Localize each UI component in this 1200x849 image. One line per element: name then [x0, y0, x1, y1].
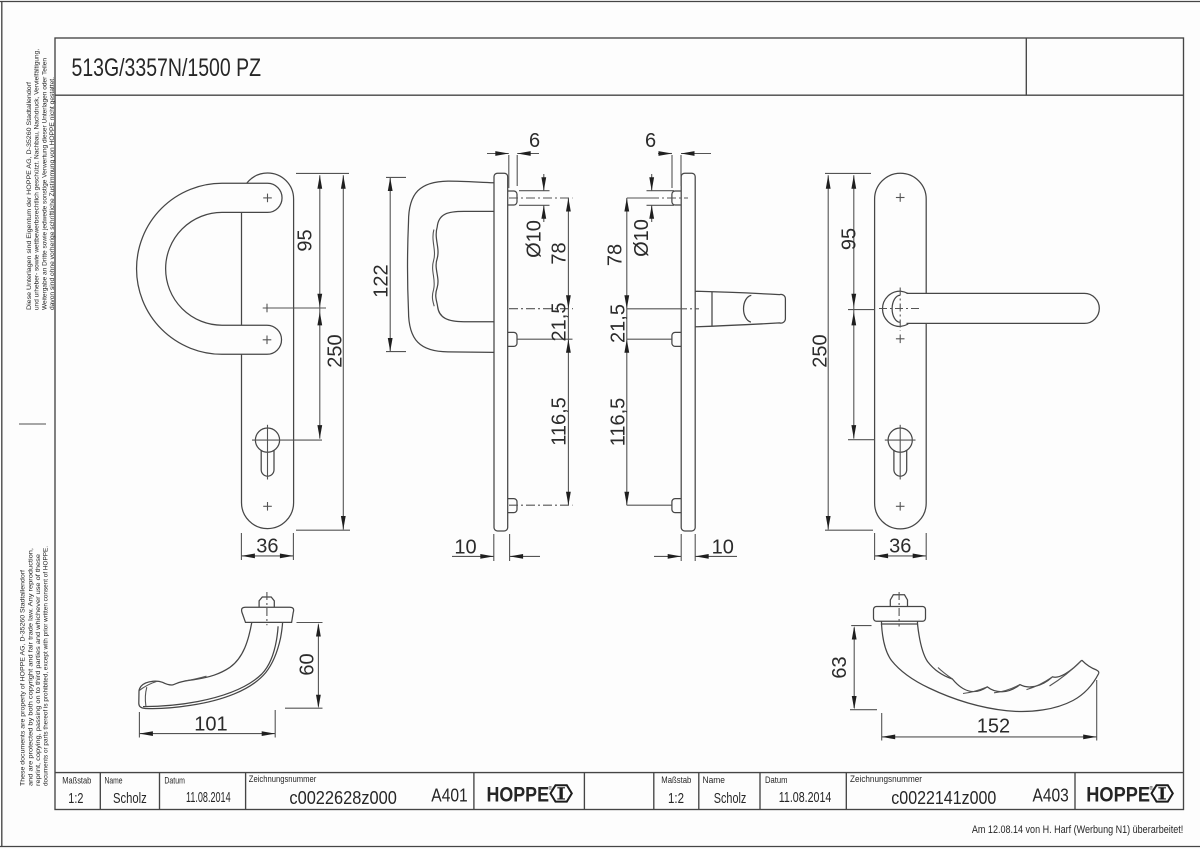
svg-text:Scholz: Scholz [113, 790, 147, 807]
svg-text:6: 6 [645, 130, 656, 152]
svg-text:Zeichnungsnummer: Zeichnungsnummer [249, 774, 316, 784]
svg-text:Zeichnungsnummer: Zeichnungsnummer [850, 774, 922, 784]
svg-text:1:2: 1:2 [668, 790, 684, 807]
svg-text:Maßstab: Maßstab [661, 775, 691, 785]
svg-text:c0022141z000: c0022141z000 [891, 788, 996, 808]
svg-text:Datum: Datum [765, 775, 788, 785]
svg-text:A403: A403 [1033, 786, 1069, 806]
svg-text:HOPPE: HOPPE [487, 783, 550, 806]
svg-text:Weitergabe an Dritte sowie jed: Weitergabe an Dritte sowie jedwede sonst… [41, 58, 48, 310]
svg-text:A401: A401 [431, 786, 467, 806]
svg-text:Maßstab: Maßstab [62, 775, 91, 785]
svg-text:davon sind ohne vorherige schr: davon sind ohne vorherige schriftliche Z… [49, 77, 56, 310]
svg-text:63: 63 [829, 656, 851, 678]
svg-text:Ø10: Ø10 [631, 219, 653, 257]
svg-text:11.08.2014: 11.08.2014 [186, 789, 231, 806]
svg-text:Diese Unterlagen sind Eigentum: Diese Unterlagen sind Eigentum der HOPPE… [26, 82, 33, 310]
svg-text:78: 78 [605, 244, 627, 266]
svg-text:250: 250 [325, 334, 347, 367]
svg-text:116,5: 116,5 [549, 397, 571, 446]
svg-text:HOPPE: HOPPE [1086, 783, 1150, 806]
svg-text:36: 36 [889, 536, 911, 558]
svg-text:and are protected by both copy: and are protected by both copyright and … [27, 548, 34, 786]
svg-text:101: 101 [194, 714, 227, 736]
svg-text:10: 10 [712, 537, 734, 559]
svg-text:Am 12.08.14 von H. Harf (Werbu: Am 12.08.14 von H. Harf (Werbung N1) übe… [972, 824, 1183, 836]
svg-text:513G/3357N/1500 PZ: 513G/3357N/1500 PZ [72, 55, 262, 82]
svg-text:Name: Name [105, 775, 123, 785]
svg-text:10: 10 [454, 537, 476, 559]
svg-text:Datum: Datum [164, 775, 185, 785]
svg-text:60: 60 [297, 653, 319, 675]
svg-text:These documents are property o: These documents are property of HOPPE AG… [20, 570, 27, 786]
svg-text:und urheber- sowie wettbewerbs: und urheber- sowie wettbewerbsrechtlich … [34, 49, 41, 310]
svg-text:21,5: 21,5 [608, 304, 630, 343]
svg-text:1:2: 1:2 [68, 790, 83, 807]
svg-text:250: 250 [810, 334, 832, 367]
svg-text:Scholz: Scholz [714, 790, 747, 807]
svg-text:95: 95 [295, 229, 317, 251]
svg-text:21,5: 21,5 [549, 303, 571, 342]
svg-text:documents or parts thereof is: documents or parts thereof is prohibited… [43, 546, 50, 786]
svg-text:95: 95 [838, 228, 860, 250]
svg-text:36: 36 [256, 536, 278, 558]
svg-text:Ø10: Ø10 [524, 220, 546, 258]
svg-text:122: 122 [371, 264, 393, 297]
svg-text:Name: Name [703, 775, 726, 785]
svg-text:6: 6 [529, 130, 540, 152]
svg-text:152: 152 [977, 716, 1010, 738]
svg-text:reprint, copying, passing on t: reprint, copying, passing on to third pa… [35, 554, 42, 786]
svg-text:78: 78 [549, 242, 571, 264]
svg-text:116,5: 116,5 [608, 398, 630, 447]
svg-text:11.08.2014: 11.08.2014 [779, 789, 832, 806]
svg-text:c0022628z000: c0022628z000 [289, 788, 397, 808]
